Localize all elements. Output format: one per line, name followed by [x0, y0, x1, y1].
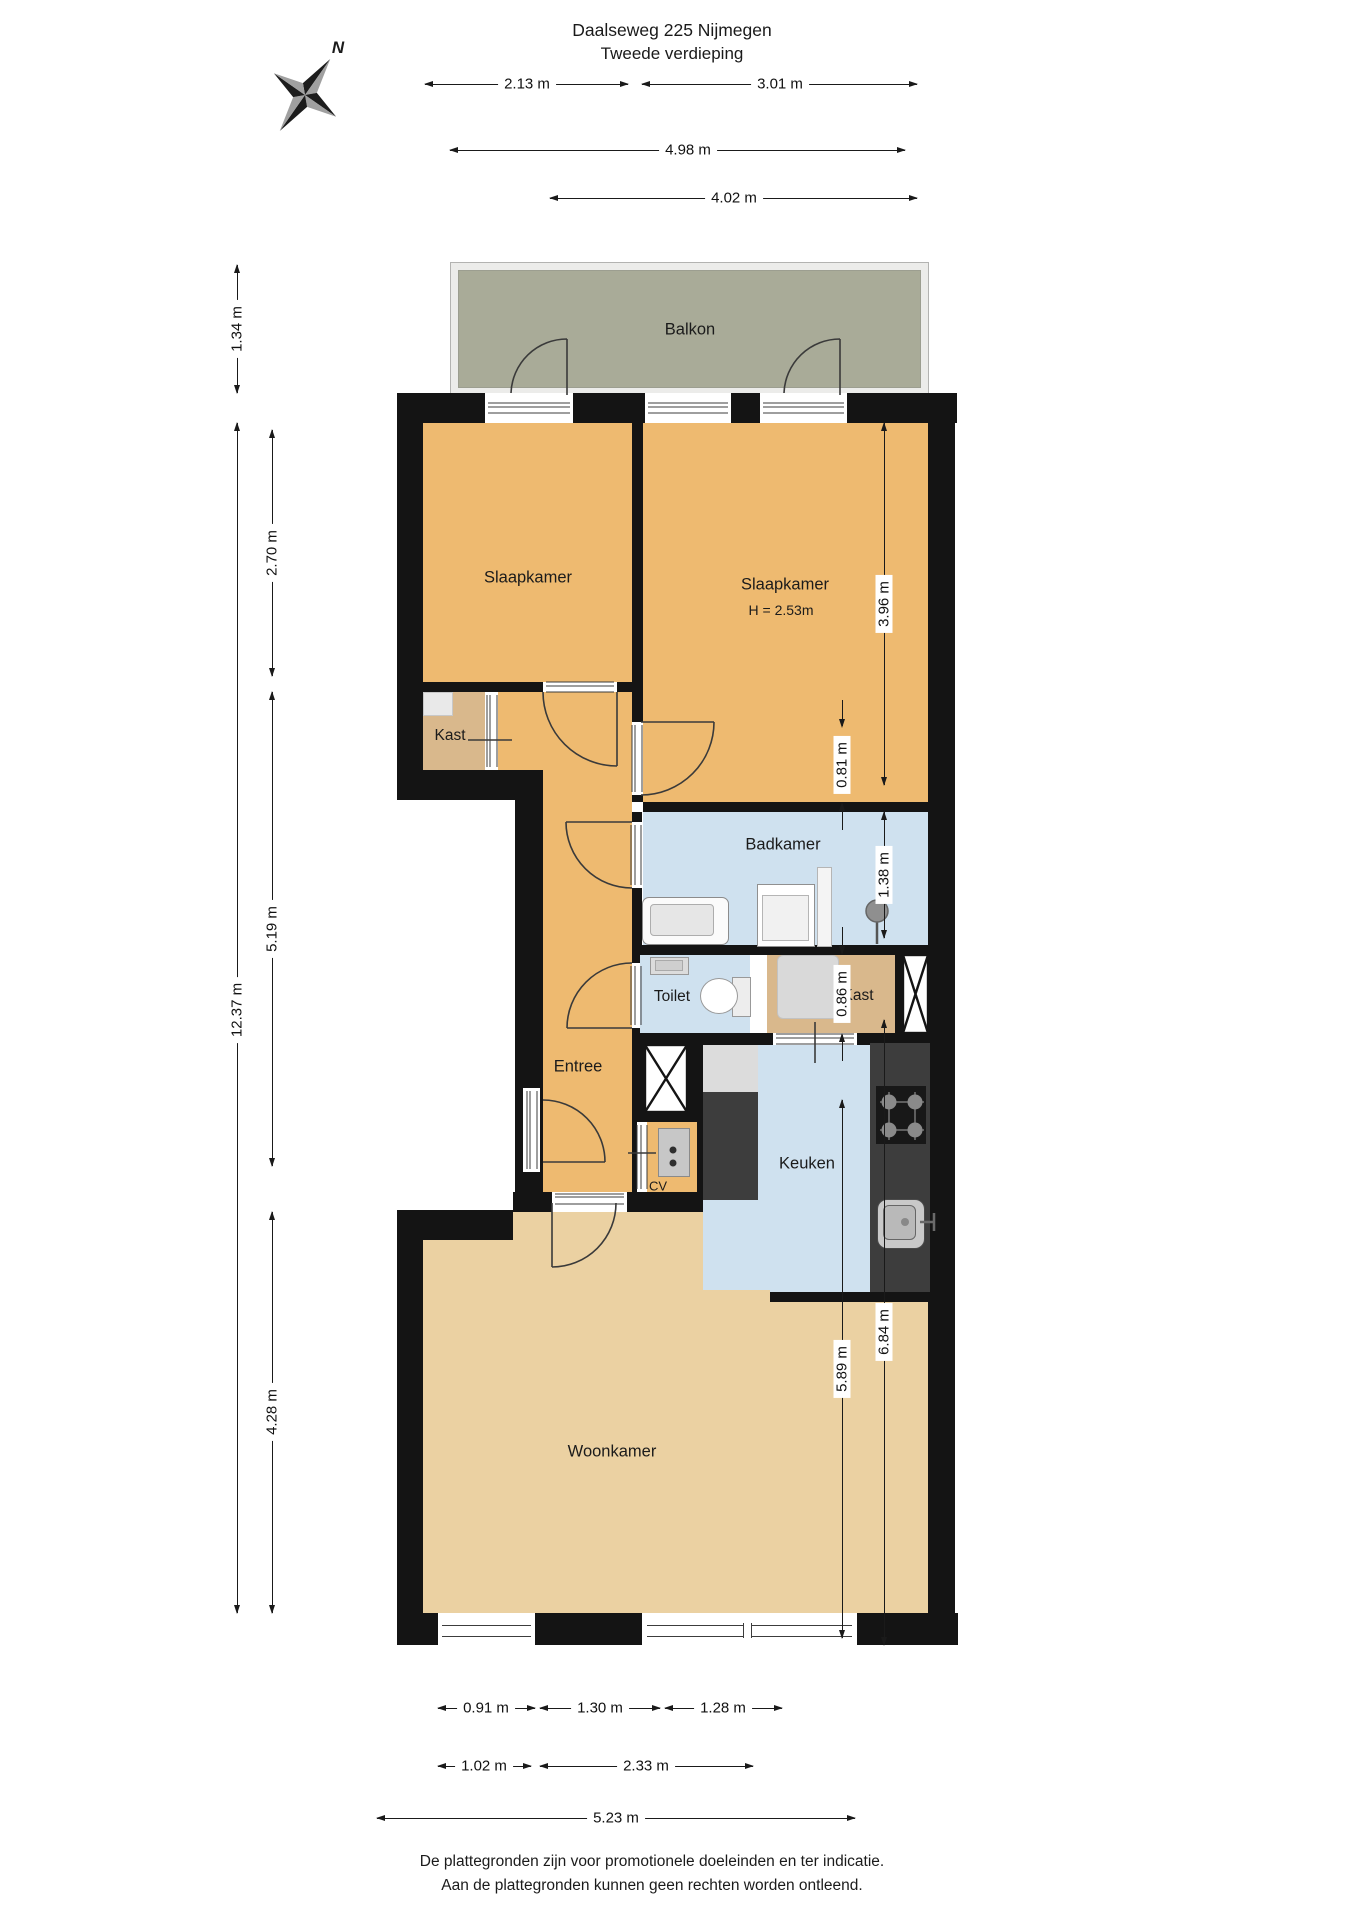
dimension-label: 0.91 m [457, 1700, 515, 1717]
dimension-label: 0.86 m [834, 965, 851, 1023]
wall-segment [632, 888, 642, 945]
entrance-door-opening [523, 1088, 540, 1172]
page-title: Daalseweg 225 Nijmegen [572, 20, 771, 41]
door-opening [552, 1194, 627, 1203]
washing-machine [757, 884, 815, 947]
wall-segment [617, 682, 643, 692]
footer-disclaimer-line1: De plattegronden zijn voor promotionele … [420, 1853, 884, 1871]
dimension-label: 0.81 m [834, 736, 851, 794]
wall-segment [632, 423, 643, 682]
page-subtitle: Tweede verdieping [601, 44, 744, 64]
door-opening [632, 722, 641, 795]
dimension-label: 5.89 m [834, 1340, 851, 1398]
shaft-x-icon [645, 1045, 687, 1112]
window-mullion [743, 1623, 752, 1638]
boiler [777, 955, 839, 1019]
window [438, 1613, 535, 1643]
ceiling-height-label: H = 2.53m [749, 602, 814, 618]
room-label-cv: CV [649, 1179, 667, 1194]
floorplan-page: Daalseweg 225 Nijmegen Tweede verdieping… [0, 0, 1358, 1920]
room-label-toilet: Toilet [654, 988, 690, 1006]
wall-segment [397, 1240, 423, 1645]
dimension-arrow [839, 1033, 845, 1042]
interior-window [543, 682, 617, 692]
room-label-keuken: Keuken [779, 1155, 835, 1174]
dimension-label: 3.01 m [751, 76, 809, 93]
room-label-slaapkamer-left: Slaapkamer [484, 569, 572, 588]
dimension-label: 1.30 m [571, 1700, 629, 1717]
wall-segment [397, 770, 543, 800]
dimension-label: 4.28 m [264, 1383, 281, 1441]
livingroom-floor [703, 1290, 770, 1613]
room-label-slaapkamer-right: Slaapkamer [741, 576, 829, 595]
dimension-label: 1.28 m [694, 1700, 752, 1717]
room-label-entree: Entree [554, 1058, 603, 1077]
wall-segment [632, 955, 640, 963]
wall-segment [847, 393, 957, 423]
wall-segment [632, 795, 643, 802]
wall-segment [632, 1033, 773, 1045]
closet-shelf [423, 692, 453, 716]
livingroom-floor [513, 1212, 703, 1613]
wall-segment [397, 692, 423, 770]
dimension-arrow [839, 946, 845, 955]
room-label-balkon: Balkon [665, 321, 715, 340]
wall-segment [397, 423, 423, 682]
wall-segment [513, 1192, 552, 1212]
dimension-label: 5.19 m [264, 900, 281, 958]
bathtub [642, 897, 729, 945]
shaft-box [903, 955, 928, 1033]
dimension-label: 1.38 m [876, 846, 893, 904]
cv-unit [658, 1128, 690, 1177]
dimension-label: 12.37 m [229, 977, 246, 1043]
dimension-label: 2.70 m [264, 524, 281, 582]
wall-segment [857, 1613, 958, 1645]
wall-segment [895, 947, 903, 1033]
interior-window [485, 692, 498, 770]
room-label-kast-hal: Kast [434, 727, 465, 745]
window [642, 1613, 857, 1643]
wall-segment [632, 812, 642, 822]
dimension-label: 1.02 m [455, 1758, 513, 1775]
wall-segment [632, 1045, 645, 1118]
dimension-label: 1.34 m [229, 300, 246, 358]
room-label-woonkamer: Woonkamer [568, 1443, 657, 1462]
dimension-label: 4.98 m [659, 142, 717, 159]
wall-segment [731, 393, 760, 423]
dimension-arrow [839, 719, 845, 728]
shaft-box [645, 1045, 687, 1112]
kitchen-counter [703, 1045, 758, 1092]
dimension-label: 6.84 m [876, 1303, 893, 1361]
dimension-label: 4.02 m [705, 190, 763, 207]
wall-segment [573, 393, 645, 423]
bedroom-left-floor [423, 423, 632, 682]
dimension-arrow [839, 802, 845, 811]
window [760, 393, 847, 423]
dimension-label: 2.33 m [617, 1758, 675, 1775]
window [485, 393, 573, 423]
hall-upper-floor [498, 692, 632, 770]
wall-segment [928, 423, 955, 1645]
compass-rose-icon [249, 37, 362, 153]
wall-segment [397, 682, 543, 692]
kitchen-counter [703, 1092, 758, 1200]
dimension-label: 2.13 m [498, 76, 556, 93]
wall-segment [397, 393, 485, 423]
shower-partition [817, 867, 832, 947]
toilet-bowl [700, 978, 738, 1014]
door-opening [632, 963, 640, 1028]
dimension-label: 5.23 m [587, 1810, 645, 1827]
livingroom-floor [423, 1240, 513, 1613]
wall-segment [535, 1613, 642, 1645]
footer-disclaimer-line2: Aan de plattegronden kunnen geen rechten… [441, 1877, 862, 1895]
room-label-badkamer: Badkamer [745, 836, 820, 855]
hand-basin [650, 957, 689, 975]
door-opening [637, 1122, 647, 1192]
wall-segment [632, 692, 643, 722]
hall-lower-floor [543, 770, 632, 1192]
window [645, 393, 731, 423]
dimension-label: 3.96 m [876, 575, 893, 633]
shaft-x-icon [903, 955, 928, 1033]
kitchen-counter [870, 1043, 930, 1292]
door-opening [632, 822, 640, 888]
wall-segment [397, 1613, 438, 1645]
compass-north-label: N [332, 38, 344, 58]
wall-segment [397, 1210, 513, 1240]
wall-segment [770, 1292, 930, 1302]
wall-segment [627, 1192, 703, 1212]
